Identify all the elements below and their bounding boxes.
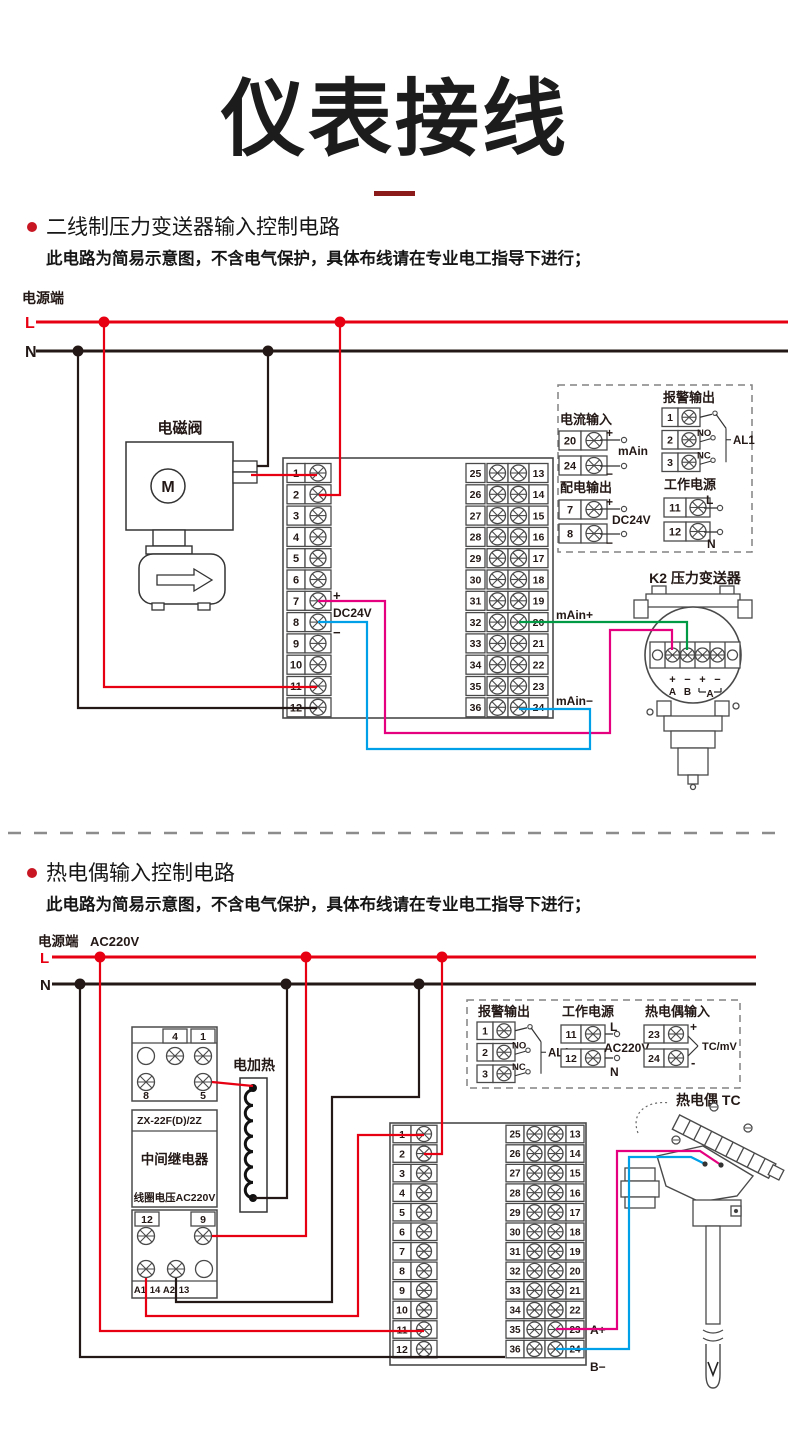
terminal-number: 13 [533,468,545,480]
terminal-sign: + [699,674,705,686]
terminal-number: 23 [533,681,545,693]
junction-dot [335,317,346,328]
label: + [606,495,613,509]
terminal-number: 23 [648,1029,660,1041]
terminal-number: 35 [509,1325,521,1336]
probe-upper [706,1226,720,1324]
no-contact-icon [711,436,715,440]
terminal-number: 35 [470,681,482,693]
terminal-number: 3 [293,511,299,523]
terminal-number: 18 [533,574,545,586]
n-label: N [707,537,716,551]
terminal-number: 19 [569,1247,581,1258]
terminal-number: 3 [667,457,673,469]
open-terminal-icon [717,529,722,534]
terminal-number: 14 [533,489,545,501]
nc-contact-icon [711,458,715,462]
terminal-number: 12 [565,1053,577,1065]
ac220v-label: AC220V [604,1041,649,1055]
n-line-label: N [25,344,37,361]
terminal-letter: B [684,687,691,698]
terminal-number: 25 [470,468,482,480]
dc24v-label: DC24V [612,513,651,527]
tc-mv-label: TC/mV [702,1041,738,1053]
n-to-solenoid-wire [257,351,268,466]
relay-terminal-number: 13 [179,1285,190,1296]
relay-terminal-number: 4 [172,1031,178,1043]
instrument-wiring-page: { "page": { "title": "仪表接线" }, "colors":… [0,0,790,1434]
terminal-number: 2 [399,1148,405,1160]
terminal-letter: A [669,687,676,698]
terminal-number: 10 [290,660,302,672]
relay-terminal-number: 9 [200,1214,206,1226]
terminal-number: 2 [482,1047,488,1059]
relay-terminal-number: A2 [163,1285,175,1296]
terminal-number: 17 [533,553,545,565]
wiring-diagram-canvas: 电源端LN电磁阀M1251322614327154281652917630187… [0,0,790,1434]
tc-wire-dot [702,1161,707,1166]
junction-dot [95,952,106,963]
label: + [606,426,613,440]
open-terminal-icon [614,1031,619,1036]
nc-label: NC [512,1062,526,1073]
l-line-label: L [25,315,35,332]
terminal-number: 17 [569,1208,581,1219]
relay-terminal-number: 1 [200,1031,206,1043]
terminal-number: 16 [569,1188,581,1199]
terminal-number: 7 [293,596,299,608]
terminal-number: 1 [667,412,673,424]
terminal-number: 19 [533,596,545,608]
terminal-number: 24 [564,460,577,472]
terminal-number: 29 [509,1208,521,1219]
terminal-number: 10 [396,1305,408,1317]
terminal-number: 22 [569,1306,581,1317]
terminal-number: 15 [533,510,545,522]
terminal-number: 16 [533,532,545,544]
heater-label: 电加热 [233,1057,275,1073]
intermediate-relay: 4185ZX-22F(D)/2Z中间继电器线圈电压AC220V129A114A2… [132,1027,217,1298]
terminal-number: 36 [509,1345,521,1356]
junction-dot [414,979,425,990]
terminal-number: 11 [565,1029,576,1041]
tc-wire-dot [718,1162,723,1167]
relay-terminal-number: 12 [141,1214,153,1226]
relay-name-label: 中间继电器 [141,1151,209,1167]
legend-title: 报警输出 [663,390,715,405]
terminal-number: 1 [482,1026,488,1038]
terminal-number: 13 [569,1130,581,1141]
terminal-number: 11 [669,502,681,514]
switch-blade-icon [531,1028,541,1042]
motor-label: M [161,479,174,496]
diagram-thermocouple: 电源端AC220VLN4185ZX-22F(D)/2Z中间继电器线圈电压AC22… [38,933,785,1388]
junction-dot [99,317,110,328]
terminal-number: 34 [470,659,482,671]
relay-hole-icon [138,1048,155,1065]
terminal-number: 20 [569,1266,581,1277]
terminal-number: 23 [569,1325,581,1336]
terminal-number: 28 [470,532,482,544]
probe-break [703,1330,723,1333]
terminal-number: 14 [569,1149,581,1160]
nc-contact-icon [526,1070,530,1074]
open-terminal-icon [621,437,626,442]
main-label: mAin [618,444,648,458]
l-line-label: L [40,950,49,967]
terminal-number: 21 [569,1286,581,1297]
probe-tip [706,1344,720,1388]
thermocouple: 热电偶 TC [621,1092,785,1388]
terminal-letter: A [706,689,713,700]
junction-dot [75,979,86,990]
terminal-number: 15 [569,1169,581,1180]
solenoid-valve: 电磁阀M [126,419,257,610]
junction-dot [301,952,312,963]
terminal-number: 6 [293,574,299,586]
n-line-label: N [40,977,51,994]
legend-title: 报警输出 [478,1004,530,1019]
legend-title: 工作电源 [562,1004,614,1019]
terminal-number: 8 [567,528,573,540]
terminal-number: 26 [509,1149,521,1160]
nc-label: NC [697,450,711,461]
label: − [606,536,613,550]
terminal-number: 21 [533,638,545,650]
power-terminal-label: 电源端 [22,290,64,306]
legend-box-2: 报警输出123NONCAL1工作电源1112LAC220VN热电偶输入2324+… [467,1000,740,1088]
terminal-number: 26 [470,489,482,501]
terminal-number: 32 [509,1266,521,1277]
no-label: NO [697,428,711,439]
n-label: N [610,1065,619,1079]
legend-title: 配电输出 [560,480,612,495]
instrument-terminal-block-1: 1251322614327154281652917630187311983220… [283,458,593,718]
relay-terminal-number: 8 [143,1090,149,1102]
open-terminal-icon [717,505,722,510]
thermocouple-title: 热电偶 TC [676,1092,741,1108]
terminal-number: 8 [293,617,299,629]
terminal-number: 25 [509,1130,521,1141]
cap-chain-icon [636,1103,670,1133]
relay-terminal-number: 14 [150,1285,161,1296]
voltage-label: AC220V [90,934,139,949]
terminal-number: 4 [293,532,300,544]
terminal-sign: − [714,674,720,686]
b-minus-label: B− [590,1360,606,1374]
terminal-number: 3 [482,1069,488,1081]
terminal-number: 24 [569,1345,581,1356]
junction-dot [263,346,274,357]
terminal-number: 33 [509,1286,521,1297]
terminal-number: 31 [509,1247,521,1258]
terminal-number: 36 [470,702,482,714]
terminal-number: 24 [648,1053,660,1065]
terminal-number: 33 [470,638,482,650]
terminal-number: 4 [399,1187,405,1199]
main-minus-label: mAin− [556,694,593,708]
legend-title: 工作电源 [664,477,716,492]
dc24v-label: DC24V [333,606,372,620]
open-terminal-icon [621,506,626,511]
al1-label: AL1 [733,435,755,447]
terminal-number: 29 [470,553,482,565]
terminal-number: 32 [470,617,482,629]
terminal-number: 7 [567,504,573,516]
terminal-number: 12 [669,526,681,538]
terminal-number: 22 [533,659,545,671]
switch-blade-icon [716,414,726,428]
solenoid-label: 电磁阀 [157,419,202,437]
main-plus-label: mAin+ [556,608,593,622]
probe-break [703,1338,723,1341]
terminal-number: 5 [293,553,299,565]
terminal-number: 28 [509,1188,521,1199]
no-contact-icon [526,1048,530,1052]
legend-box-1: 电流输入2024+mAin−报警输出123NONCAL1配电输出78+DC24V… [558,385,755,552]
terminal-number: 18 [569,1227,581,1238]
terminal-number: 30 [509,1227,521,1238]
junction-dot [281,979,292,990]
relay-hole-icon [196,1261,213,1278]
open-terminal-icon [621,531,626,536]
open-terminal-icon [614,1055,619,1060]
terminal-number: 20 [564,435,576,447]
power-terminal-label: 电源端 [38,933,79,949]
terminal-number: 34 [509,1306,521,1317]
terminal-number: 3 [399,1168,405,1180]
label: - [691,1055,695,1070]
terminal-number: 2 [293,489,299,501]
terminal-number: 12 [396,1344,408,1356]
terminal-number: 5 [399,1207,405,1219]
relay-terminal-number: 5 [200,1090,206,1102]
terminal-number: 9 [293,638,299,650]
terminal-number: 27 [470,510,482,522]
terminal-sign: + [669,674,675,686]
relay-coil-label: 线圈电压AC220V [134,1191,216,1204]
no-label: NO [512,1040,526,1051]
junction-dot [437,952,448,963]
transmitter-title: K2 压力变送器 [649,570,742,586]
terminal-number: 27 [509,1169,521,1180]
terminal-number: 2 [667,435,673,447]
open-terminal-icon [621,463,626,468]
diagram-two-wire-transmitter: 电源端LN电磁阀M1251322614327154281652917630187… [22,290,788,790]
pressure-transmitter: K2 压力变送器+−+−ABA [634,570,752,790]
legend-title: 热电偶输入 [645,1004,710,1019]
terminal-number: 30 [470,574,482,586]
legend-title: 电流输入 [560,412,612,427]
dc24v-minus-label: − [333,625,341,640]
relay-terminal-number: A1 [134,1285,147,1296]
electric-heater: 电加热 [233,1057,275,1212]
instrument-terminal-block-2: 1251322614327154281652917630187311983220… [390,1123,606,1374]
junction-dot [73,346,84,357]
l-label: L [706,493,713,507]
terminal-number: 31 [470,596,482,608]
terminal-sign: − [684,674,690,686]
label: + [690,1020,697,1034]
terminal-number: 6 [399,1227,405,1239]
terminal-number: 7 [399,1246,405,1258]
relay-model-label: ZX-22F(D)/2Z [137,1115,202,1127]
label: − [606,467,613,481]
terminal-number: 8 [399,1266,405,1278]
terminal-number: 9 [399,1285,405,1297]
